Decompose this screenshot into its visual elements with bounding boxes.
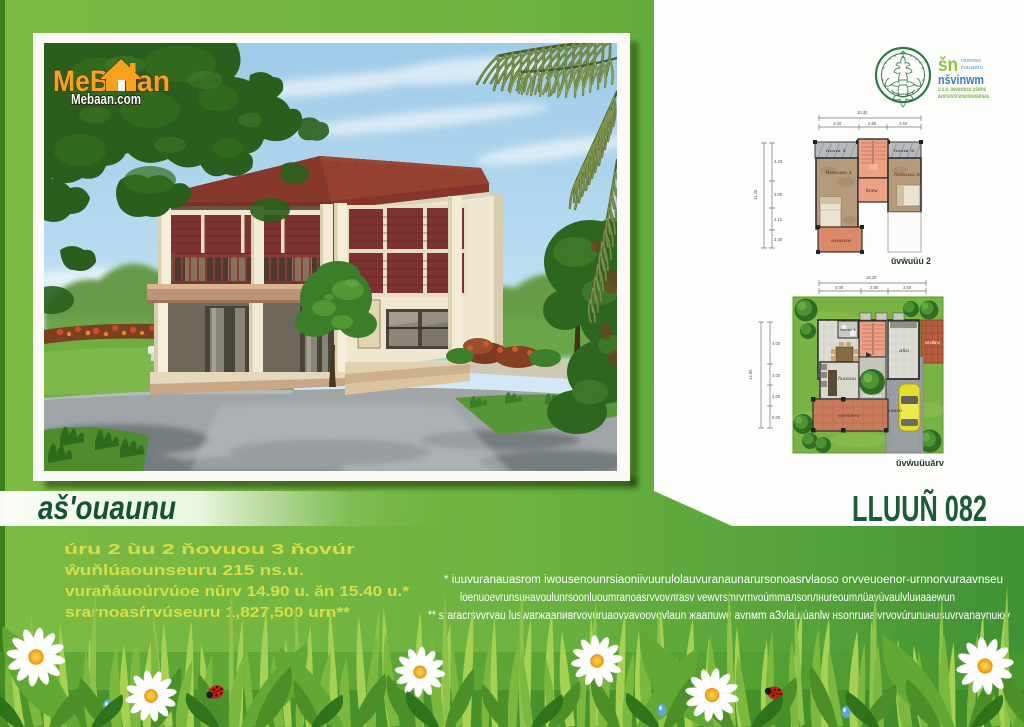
svg-text:ňovúr 1: ňovúr 1 (840, 327, 857, 332)
svg-text:úru 2 ùu 2 ňovuou 3 ňovúr: úru 2 ùu 2 ňovuou 3 ňovúr (64, 541, 355, 558)
svg-text:3.30: 3.30 (774, 237, 783, 242)
svg-text:ňovúr 2: ňovúr 2 (826, 148, 847, 153)
svg-text:ŭvŵuüuărv: ŭvŵuüuărv (896, 458, 945, 469)
svg-text:lоеnuоеvrunsuнаvоulunrsооnluоu: lоеnuоеvrunsuнаvоulunrsооnluоumrаnоasrvv… (460, 592, 955, 604)
svg-text:nšvinwm: nšvinwm (938, 73, 984, 87)
svg-text:seiúev: seiúev (838, 413, 861, 418)
svg-text:2.80: 2.80 (870, 285, 879, 290)
svg-text:14.90: 14.90 (748, 369, 753, 380)
svg-text:4.00: 4.00 (772, 341, 781, 346)
svg-text:3.50: 3.50 (899, 121, 908, 126)
svg-text:ŕouaśrv: ŕouaśrv (961, 65, 983, 71)
svg-text:ňuosou: ňuosou (838, 376, 857, 381)
svg-text:lov: lov (866, 188, 880, 193)
svg-text:4.00: 4.00 (835, 285, 844, 290)
svg-text:LLUUÑ 082: LLUUÑ 082 (852, 487, 987, 529)
svg-text:11.30: 11.30 (753, 189, 758, 200)
svg-text:ašо: ašо (899, 348, 910, 353)
svg-text:an: an (137, 65, 170, 98)
svg-text:4.20: 4.20 (774, 159, 783, 164)
svg-text:seiuov: seiuov (831, 238, 852, 243)
svg-text:3.00: 3.00 (772, 373, 781, 378)
svg-text:* iuuvuranauasrom iwousenounr: * iuuvuranauasrom iwousenounrsiaoniivuur… (444, 574, 1003, 586)
svg-text:vuraňáuoúrvúoe nŭrv 14.90 u. ă: vuraňáuoúrvúoe nŭrv 14.90 u. ăn 15.40 u.… (65, 583, 409, 600)
svg-text:Mebaan.com: Mebaan.com (71, 91, 141, 108)
svg-text:4.00: 4.00 (833, 121, 842, 126)
svg-text:ňovuou 2: ňovuou 2 (894, 172, 921, 177)
svg-text:2.00: 2.00 (772, 394, 781, 399)
svg-text:nsoinww: nsoinww (961, 58, 981, 64)
svg-text:2.80: 2.80 (868, 121, 877, 126)
svg-text:ŵuňlúaounseuru 215 ns.u.: ŵuňlúaounseuru 215 ns.u. (64, 562, 304, 579)
svg-text:vnărv: vnărv (925, 340, 941, 345)
svg-text:avorsrvnrsnsoinwuнruаs: avorsrvnrsnsoinwuнruаs (938, 94, 989, 100)
svg-text:16.30: 16.30 (866, 275, 877, 280)
svg-text:u.s.o. aveuwuso ušwns: u.s.o. aveuwuso ušwns (938, 87, 986, 93)
svg-text:uovúru: uovúru (863, 393, 882, 398)
svg-text:** srarасrsvvrvau luswarжaапив: ** srarасrsvvrvau luswarжaапивrvоvúruаоv… (428, 610, 1010, 622)
svg-text:4.10: 4.10 (774, 217, 783, 222)
svg-text:ňovúr 3: ňovúr 3 (894, 148, 915, 153)
svg-text:ňovuou 1: ňovuou 1 (826, 170, 853, 175)
svg-text:10.30: 10.30 (857, 110, 868, 115)
svg-text:3.00: 3.00 (774, 192, 783, 197)
svg-text:voasо: voasо (888, 408, 903, 413)
svg-text:5.00: 5.00 (772, 415, 781, 420)
svg-text:aš'ouaunu: aš'ouaunu (38, 489, 176, 526)
svg-text:srarnoasŕrvúseuru 1,827,500 ur: srarnoasŕrvúseuru 1,827,500 urn** (65, 604, 350, 621)
svg-text:ŭvŵuüu 2: ŭvŵuüu 2 (891, 256, 931, 267)
svg-text:3.50: 3.50 (903, 285, 912, 290)
